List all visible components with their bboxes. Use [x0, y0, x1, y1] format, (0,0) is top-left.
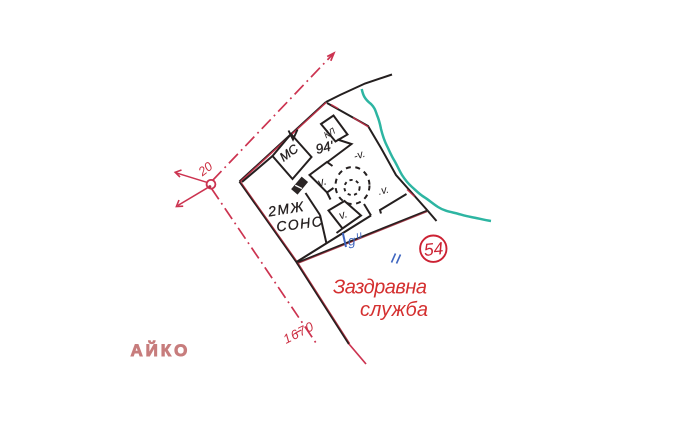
svg-text:АЙКО: АЙКО [131, 341, 191, 360]
svg-text:Заздравна: Заздравна [333, 277, 427, 299]
svg-text:служба: служба [360, 299, 428, 321]
svg-text:54: 54 [423, 238, 445, 260]
